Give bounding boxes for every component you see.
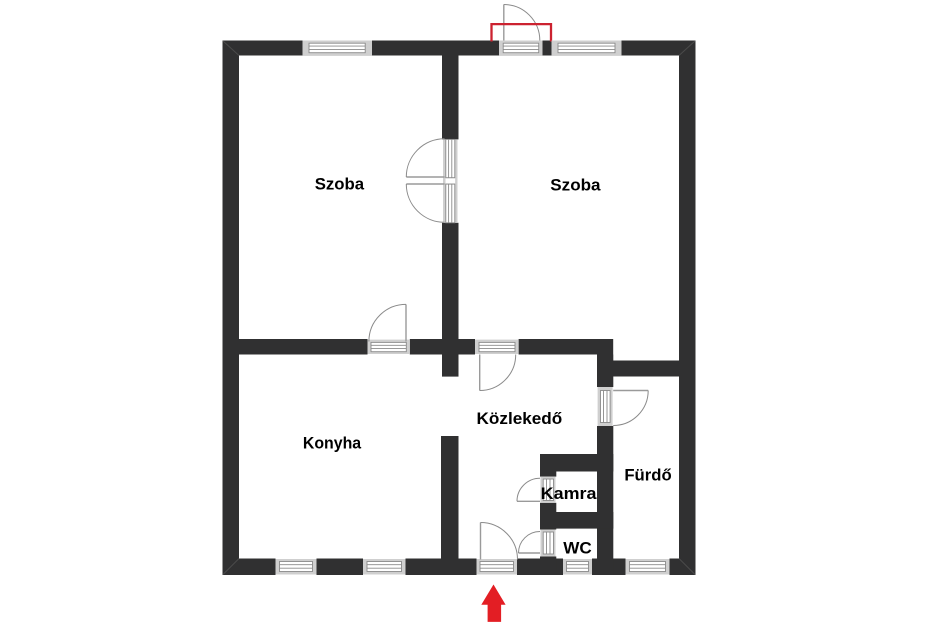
svg-text:Kamra: Kamra [541,484,597,503]
svg-text:Konyha: Konyha [303,434,362,453]
svg-text:Szoba: Szoba [550,176,601,195]
svg-text:Fürdő: Fürdő [624,465,671,484]
svg-text:Szoba: Szoba [315,175,365,194]
svg-text:WC: WC [563,539,592,558]
svg-text:Közlekedő: Közlekedő [477,409,563,428]
